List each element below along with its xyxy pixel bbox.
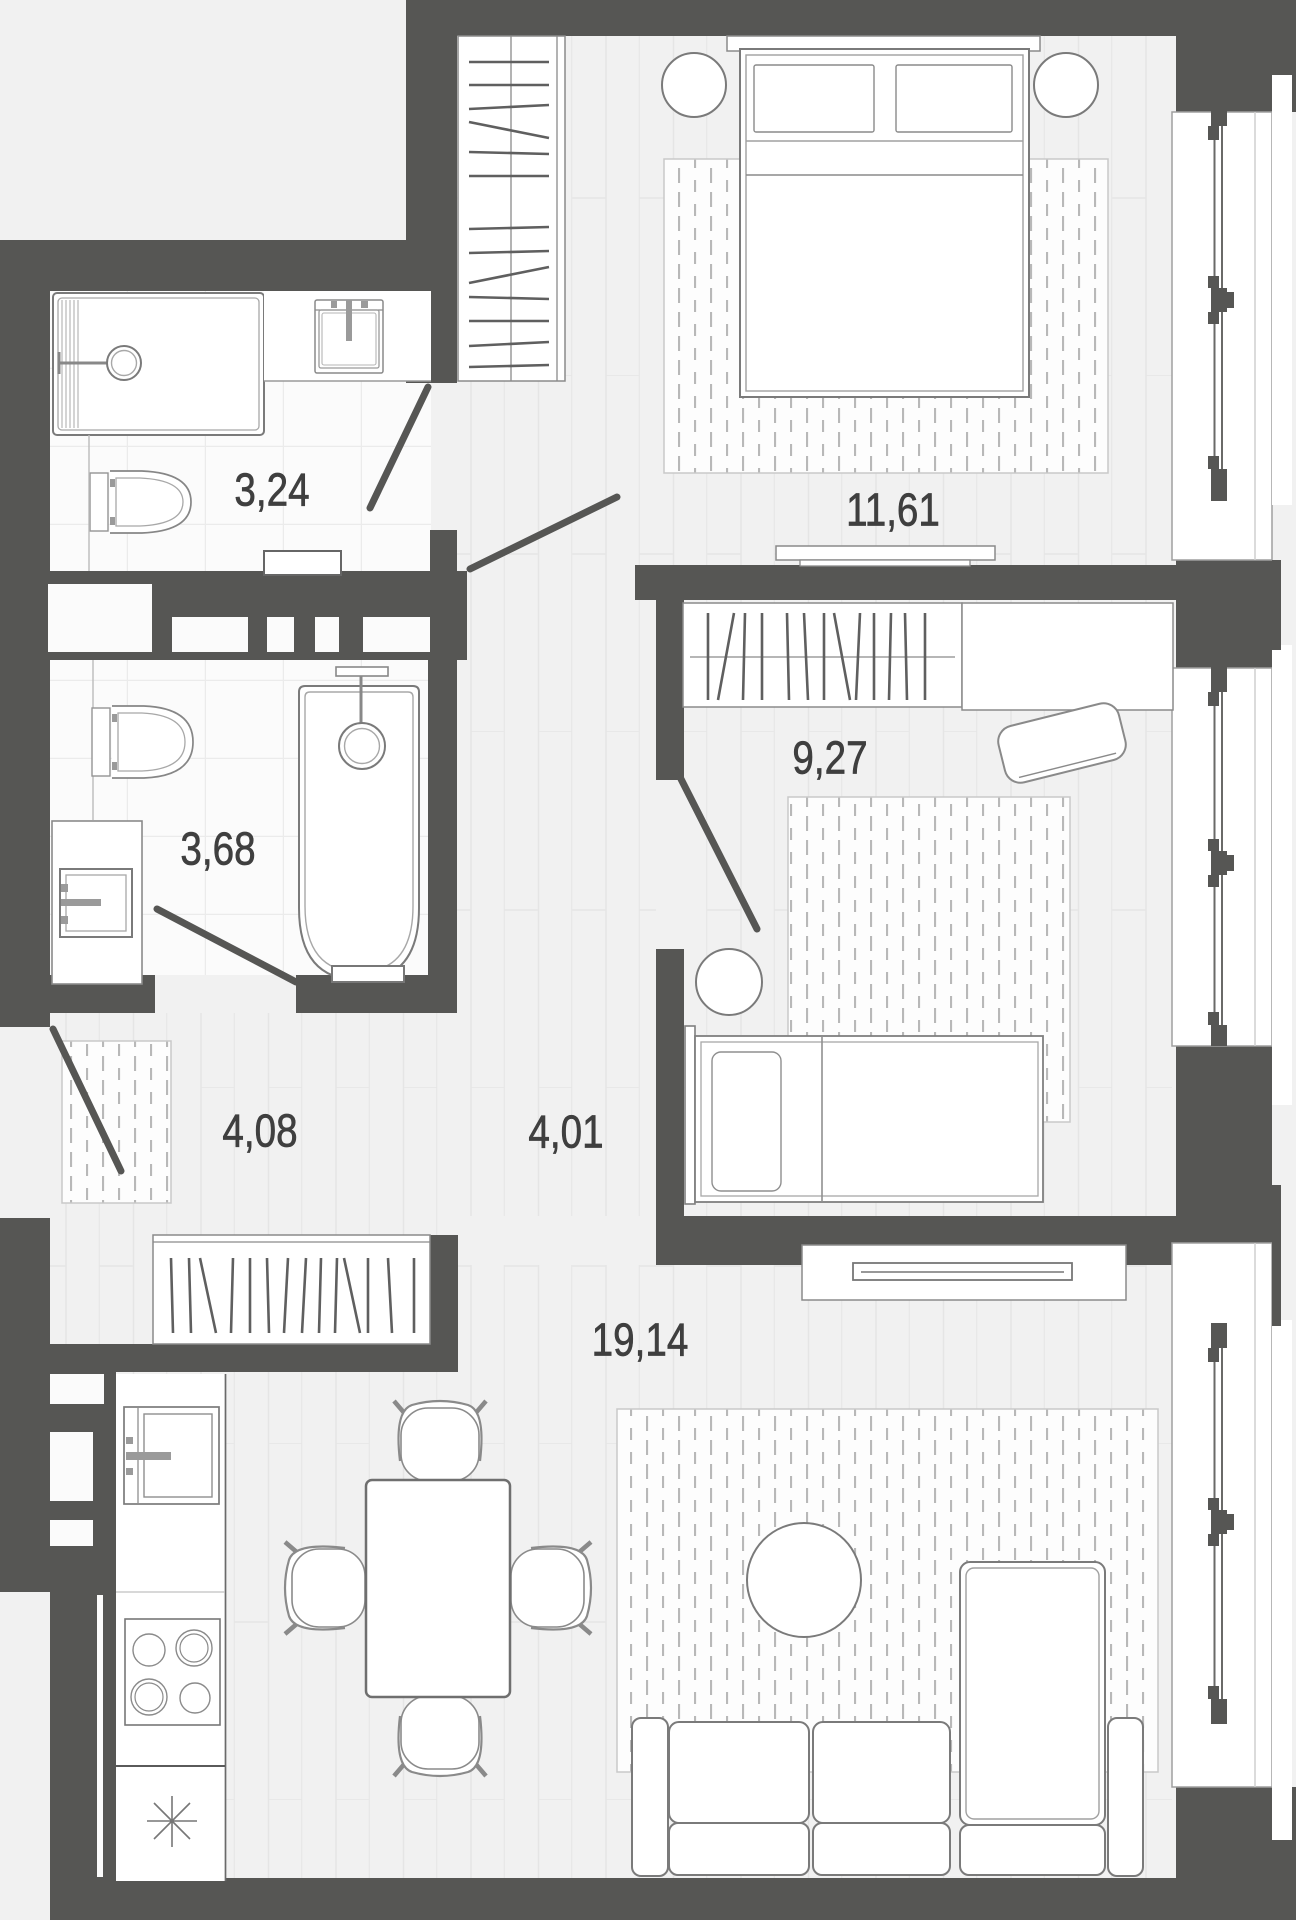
svg-text:3,68: 3,68 [180, 824, 255, 875]
svg-text:11,61: 11,61 [846, 485, 940, 536]
svg-text:3,24: 3,24 [234, 465, 309, 516]
svg-text:9,27: 9,27 [792, 733, 867, 784]
svg-text:4,08: 4,08 [222, 1106, 297, 1157]
svg-text:4,01: 4,01 [528, 1107, 603, 1158]
svg-text:19,14: 19,14 [592, 1315, 689, 1366]
